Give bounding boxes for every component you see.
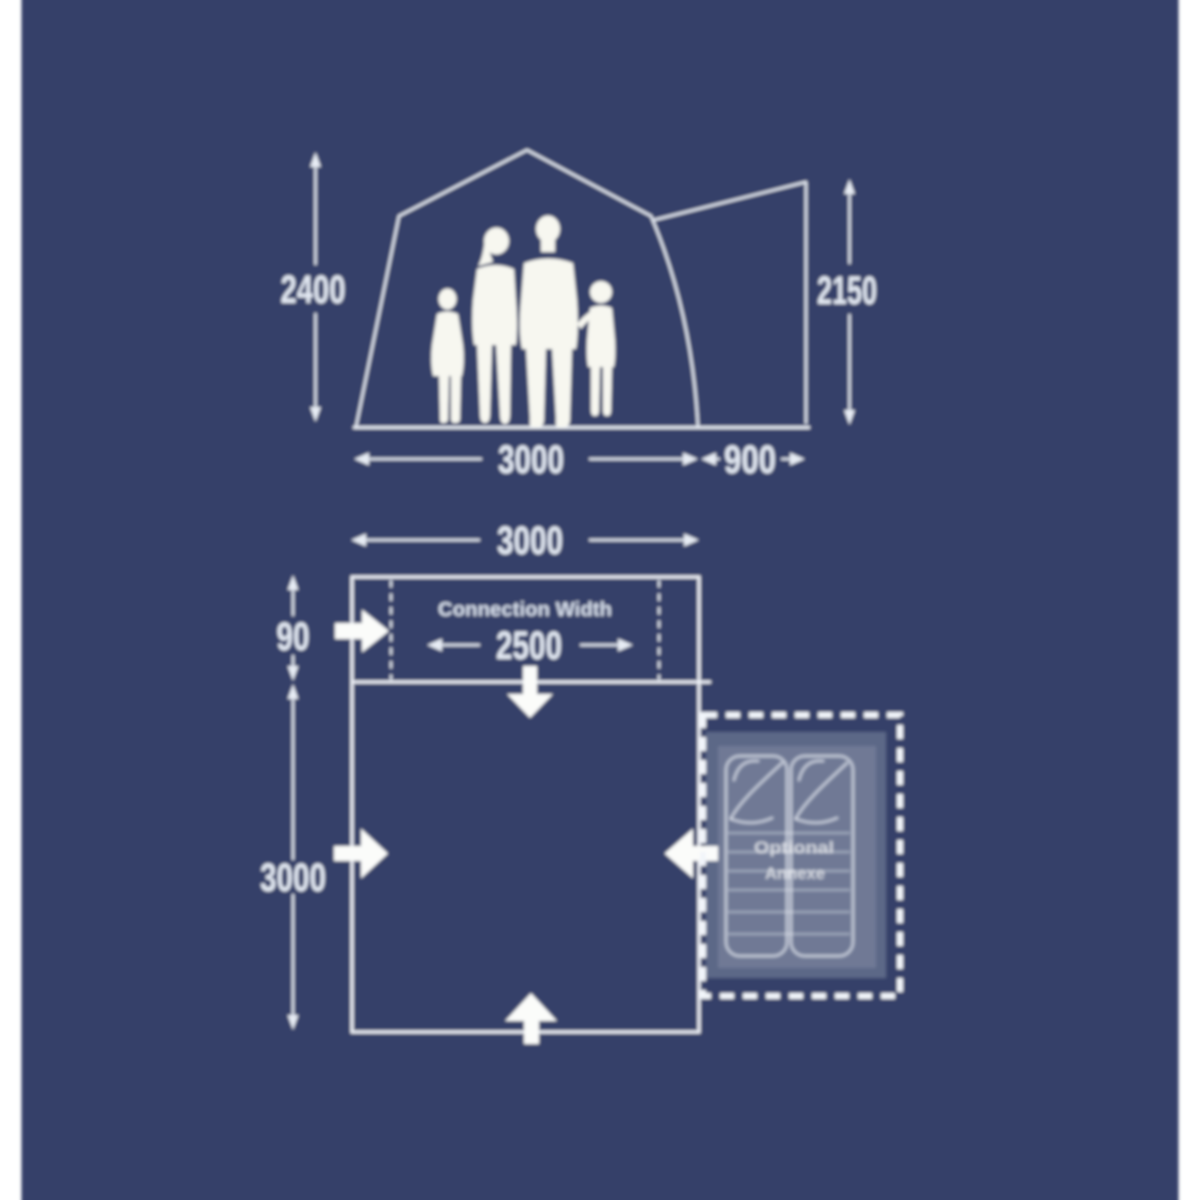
svg-text:Connection Width: Connection Width [438,599,612,621]
svg-text:3000: 3000 [497,519,563,563]
svg-text:900: 900 [724,438,776,482]
svg-text:2150: 2150 [817,269,877,313]
svg-text:2400: 2400 [281,268,346,312]
svg-text:Optional: Optional [754,838,834,857]
svg-text:3000: 3000 [498,438,564,482]
svg-text:2500: 2500 [496,624,562,668]
svg-text:90: 90 [277,615,310,659]
svg-text:3000: 3000 [260,856,326,900]
svg-text:Annexe: Annexe [765,864,825,883]
